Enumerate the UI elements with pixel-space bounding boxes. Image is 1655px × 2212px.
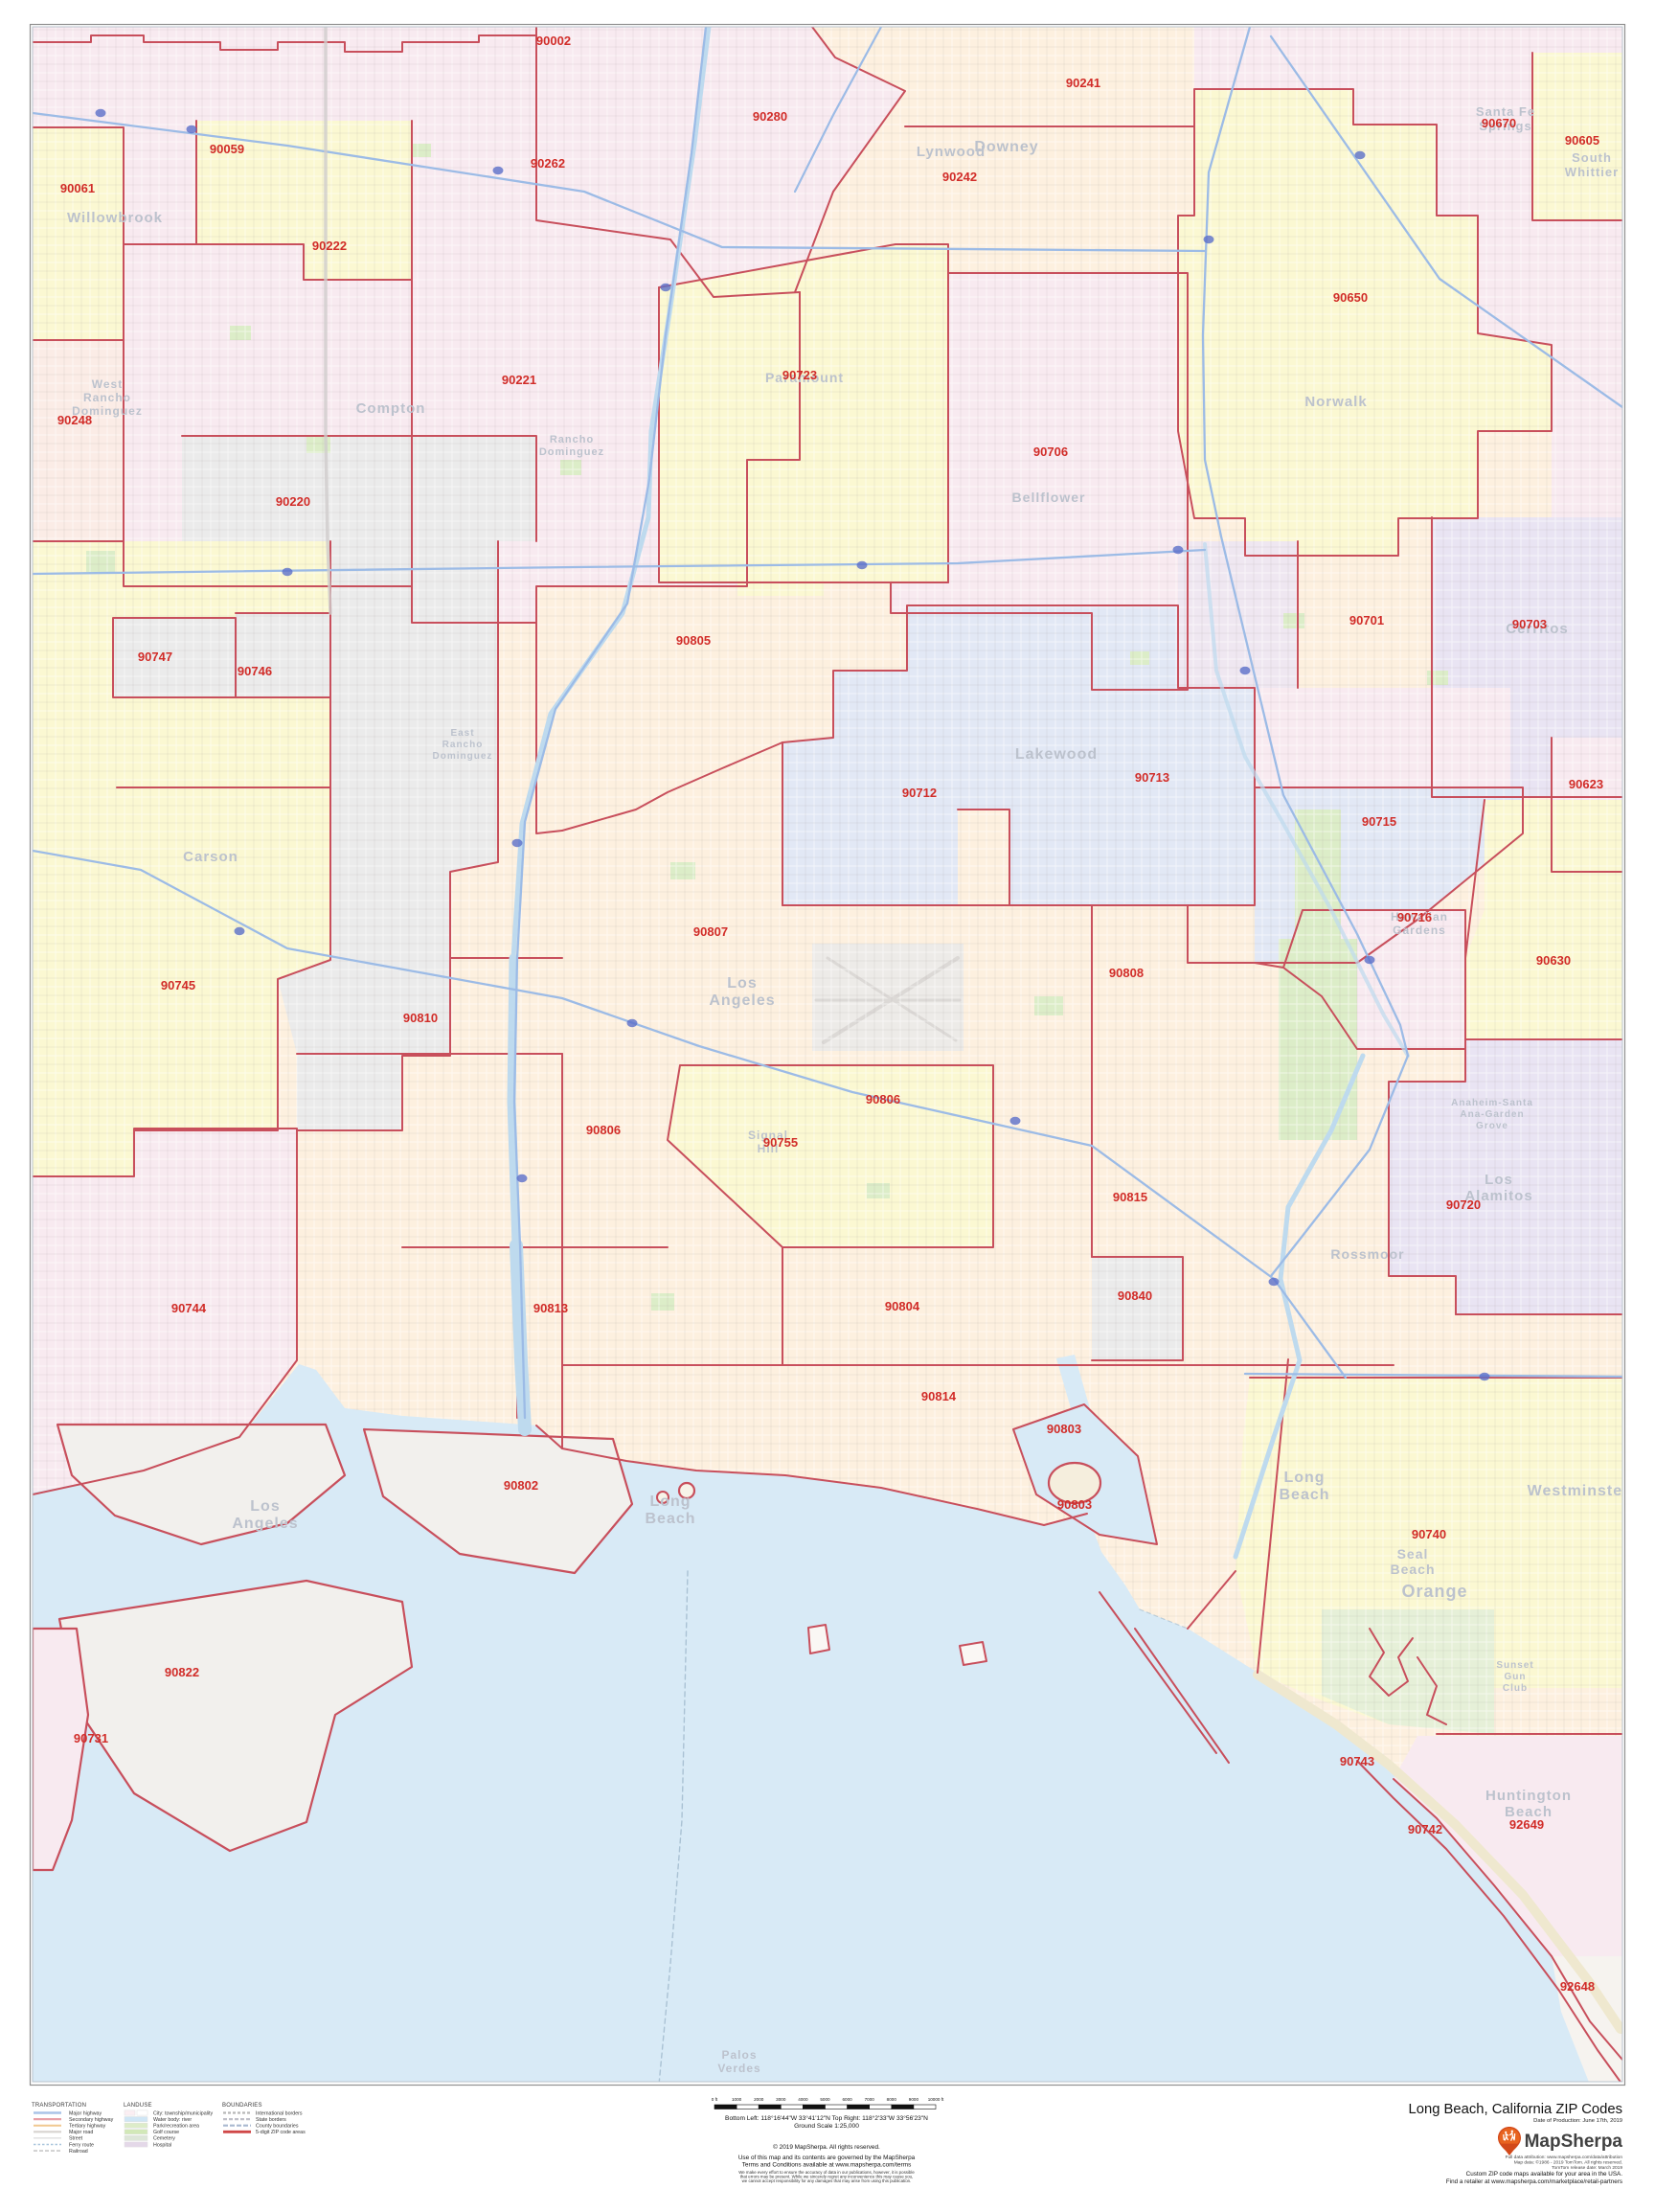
svg-text:Rossmoor: Rossmoor [1330,1246,1404,1262]
svg-text:90703: 90703 [1512,617,1547,631]
svg-text:Dominguez: Dominguez [433,751,493,762]
svg-text:90716: 90716 [1397,910,1432,924]
svg-text:Compton: Compton [356,400,426,417]
svg-text:Terms and Conditions available: Terms and Conditions available at www.ma… [742,2162,912,2169]
svg-text:Railroad: Railroad [69,2149,88,2155]
svg-text:West: West [92,377,123,391]
svg-text:7000: 7000 [865,2097,875,2102]
svg-text:90804: 90804 [885,1299,920,1313]
svg-text:4000: 4000 [798,2097,808,2102]
svg-text:3000: 3000 [776,2097,786,2102]
svg-text:90806: 90806 [586,1123,621,1137]
svg-text:Beach: Beach [645,1511,695,1527]
svg-text:Anaheim-Santa: Anaheim-Santa [1451,1098,1533,1108]
svg-text:5000: 5000 [820,2097,830,2102]
svg-text:Street: Street [69,2136,83,2142]
svg-text:90630: 90630 [1536,953,1571,968]
svg-text:92649: 92649 [1509,1817,1544,1832]
svg-text:Whittier: Whittier [1565,165,1619,179]
svg-text:Ground Scale 1:25,000: Ground Scale 1:25,000 [794,2123,859,2130]
svg-text:Tertiary highway: Tertiary highway [69,2124,106,2130]
svg-text:Cemetery: Cemetery [153,2136,175,2142]
svg-text:Date of Production: June 17th,: Date of Production: June 17th, 2019 [1533,2118,1622,2124]
svg-text:Rancho: Rancho [83,391,131,404]
svg-text:8000: 8000 [887,2097,897,2102]
svg-text:Angeles: Angeles [232,1516,298,1532]
svg-text:Los: Los [727,975,757,992]
svg-text:0 ft: 0 ft [712,2097,718,2102]
svg-text:90806: 90806 [866,1092,900,1106]
svg-text:90815: 90815 [1113,1190,1147,1204]
svg-text:Gun: Gun [1505,1672,1527,1682]
svg-text:Rancho: Rancho [550,434,594,445]
svg-text:Rancho: Rancho [442,740,484,750]
svg-text:Major road: Major road [69,2130,93,2135]
svg-text:90822: 90822 [165,1665,199,1679]
svg-text:Long: Long [1283,1470,1325,1486]
svg-text:Bottom Left: 118°16'44"W 33°41: Bottom Left: 118°16'44"W 33°41'12"N Top … [725,2114,928,2122]
svg-text:90805: 90805 [676,633,711,648]
svg-text:Gardens: Gardens [1393,924,1446,937]
svg-text:90701: 90701 [1349,613,1384,627]
svg-text:Grove: Grove [1476,1121,1508,1131]
svg-text:92648: 92648 [1560,1979,1595,1994]
svg-text:Sunset: Sunset [1496,1660,1533,1671]
svg-text:90220: 90220 [276,494,310,509]
svg-text:90745: 90745 [161,978,195,992]
svg-text:90747: 90747 [138,650,172,664]
svg-text:Orange: Orange [1401,1582,1467,1601]
svg-text:Ferry route: Ferry route [69,2142,94,2148]
svg-text:we cannot accept responsibilit: we cannot accept responsibility for any … [742,2178,912,2183]
svg-text:90061: 90061 [60,181,95,195]
svg-text:Golf course: Golf course [153,2130,179,2135]
svg-text:Beach: Beach [1390,1562,1435,1577]
svg-text:Long: Long [649,1494,691,1510]
svg-text:90248: 90248 [57,413,92,427]
svg-text:90670: 90670 [1482,116,1516,130]
svg-text:9000: 9000 [909,2097,919,2102]
svg-text:© 2019 MapSherpa. All rights r: © 2019 MapSherpa. All rights reserved. [773,2143,880,2151]
svg-text:90803: 90803 [1047,1422,1081,1436]
svg-text:City: township/municipality: City: township/municipality [153,2110,213,2116]
svg-text:TRANSPORTATION: TRANSPORTATION [32,2103,86,2109]
svg-text:2000: 2000 [754,2097,764,2102]
svg-text:90242: 90242 [942,170,977,184]
svg-text:90222: 90222 [312,239,347,253]
svg-text:Find a retailer at www.mapsher: Find a retailer at www.mapsherpa.com/mar… [1446,2178,1622,2185]
svg-text:Lakewood: Lakewood [1015,746,1098,763]
svg-text:Long Beach, California ZIP Cod: Long Beach, California ZIP Codes [1409,2102,1622,2117]
svg-text:90650: 90650 [1333,290,1368,305]
svg-text:6000: 6000 [842,2097,852,2102]
svg-text:90623: 90623 [1569,777,1603,791]
svg-text:90807: 90807 [693,924,728,939]
svg-text:MapSherpa: MapSherpa [1525,2132,1623,2152]
svg-text:Norwalk: Norwalk [1304,394,1367,410]
svg-text:Downey: Downey [974,139,1038,155]
svg-text:Water body: river: Water body: river [153,2117,192,2123]
svg-text:90744: 90744 [171,1301,207,1315]
svg-text:Ana-Garden: Ana-Garden [1460,1109,1524,1120]
svg-text:Los: Los [250,1498,280,1515]
svg-text:90002: 90002 [536,34,571,48]
svg-text:90742: 90742 [1408,1822,1442,1836]
svg-text:90712: 90712 [902,786,937,800]
svg-text:Secondary highway: Secondary highway [69,2117,114,2123]
svg-text:1000: 1000 [732,2097,742,2102]
svg-text:90280: 90280 [753,109,787,124]
svg-text:BOUNDARIES: BOUNDARIES [222,2103,262,2109]
svg-text:Willowbrook: Willowbrook [67,210,163,226]
svg-text:Park/recreation area: Park/recreation area [153,2124,199,2130]
svg-text:90262: 90262 [531,156,565,171]
svg-text:90746: 90746 [238,664,272,678]
svg-text:East: East [450,728,474,739]
svg-text:South: South [1572,150,1612,165]
svg-text:International borders: International borders [256,2110,303,2116]
svg-text:5-digit ZIP code areas: 5-digit ZIP code areas [256,2130,306,2135]
svg-text:90755: 90755 [763,1135,798,1150]
svg-text:90813: 90813 [533,1301,568,1315]
svg-text:State borders: State borders [256,2117,286,2123]
svg-text:LANDUSE: LANDUSE [124,2103,152,2109]
svg-text:90720: 90720 [1446,1197,1481,1212]
svg-text:90731: 90731 [74,1731,108,1745]
svg-text:Palos: Palos [721,2048,757,2062]
svg-text:90740: 90740 [1412,1527,1446,1541]
svg-text:Beach: Beach [1279,1487,1329,1503]
svg-text:90803: 90803 [1057,1497,1092,1512]
svg-text:Hospital: Hospital [153,2142,171,2148]
svg-text:90221: 90221 [502,373,536,387]
svg-text:Custom ZIP code maps available: Custom ZIP code maps available for your … [1466,2171,1623,2178]
svg-text:Major highway: Major highway [69,2110,102,2116]
svg-text:90743: 90743 [1340,1754,1374,1768]
svg-text:90808: 90808 [1109,966,1144,980]
svg-text:Huntington: Huntington [1485,1788,1572,1804]
svg-text:Dominguez: Dominguez [539,446,604,458]
svg-text:90802: 90802 [504,1478,538,1493]
svg-text:Verdes: Verdes [717,2062,760,2075]
svg-text:90840: 90840 [1118,1288,1152,1303]
svg-text:Bellflower: Bellflower [1012,490,1086,505]
svg-text:Angeles: Angeles [709,992,775,1009]
svg-text:Los: Los [1485,1172,1513,1188]
svg-text:Westminster: Westminster [1528,1483,1630,1499]
svg-text:10000 ft: 10000 ft [928,2097,944,2102]
svg-text:90810: 90810 [403,1011,438,1025]
svg-text:90723: 90723 [782,368,817,382]
svg-text:Club: Club [1503,1683,1528,1694]
svg-text:90713: 90713 [1135,770,1169,785]
svg-text:90706: 90706 [1033,445,1068,459]
svg-text:90059: 90059 [210,142,244,156]
svg-text:Carson: Carson [183,849,238,865]
svg-text:County boundaries: County boundaries [256,2124,299,2130]
svg-text:90814: 90814 [921,1389,957,1403]
svg-text:Full data attribution: www.map: Full data attribution: www.mapsherpa.com… [1506,2155,1623,2160]
svg-text:Seal: Seal [1397,1546,1429,1562]
svg-text:90605: 90605 [1565,133,1599,148]
svg-text:Use of this map and its conten: Use of this map and its contents are gov… [738,2155,916,2161]
svg-text:90715: 90715 [1362,814,1396,829]
svg-text:90241: 90241 [1066,76,1100,90]
svg-text:Map data: ©1986 - 2019 TomTom.: Map data: ©1986 - 2019 TomTom. All right… [1514,2159,1622,2166]
